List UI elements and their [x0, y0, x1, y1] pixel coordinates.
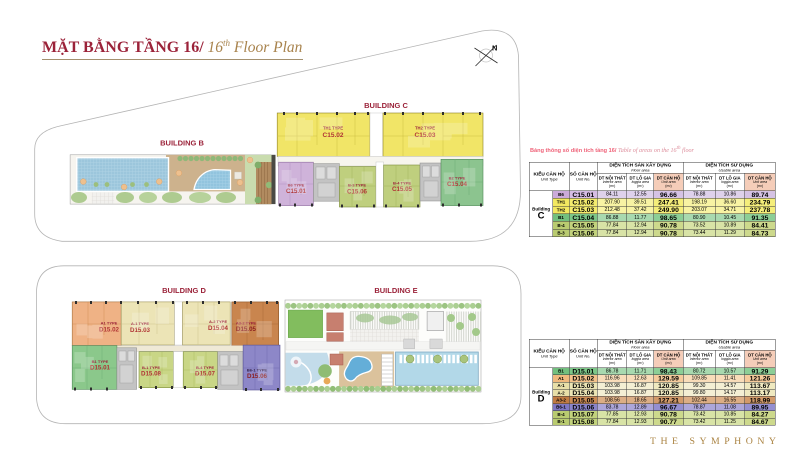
svg-text:D15.08: D15.08 [141, 371, 162, 378]
svg-text:B1 TYPE: B1 TYPE [92, 359, 109, 364]
svg-text:BUILDING E: BUILDING E [374, 286, 417, 295]
svg-text:C15.02: C15.02 [323, 132, 344, 139]
svg-text:A1 TYPE: A1 TYPE [101, 321, 118, 326]
svg-text:BUILDING B: BUILDING B [160, 139, 204, 148]
svg-text:BUILDING D: BUILDING D [162, 286, 206, 295]
svg-text:BUILDING C: BUILDING C [364, 101, 408, 110]
svg-text:N: N [492, 44, 497, 53]
